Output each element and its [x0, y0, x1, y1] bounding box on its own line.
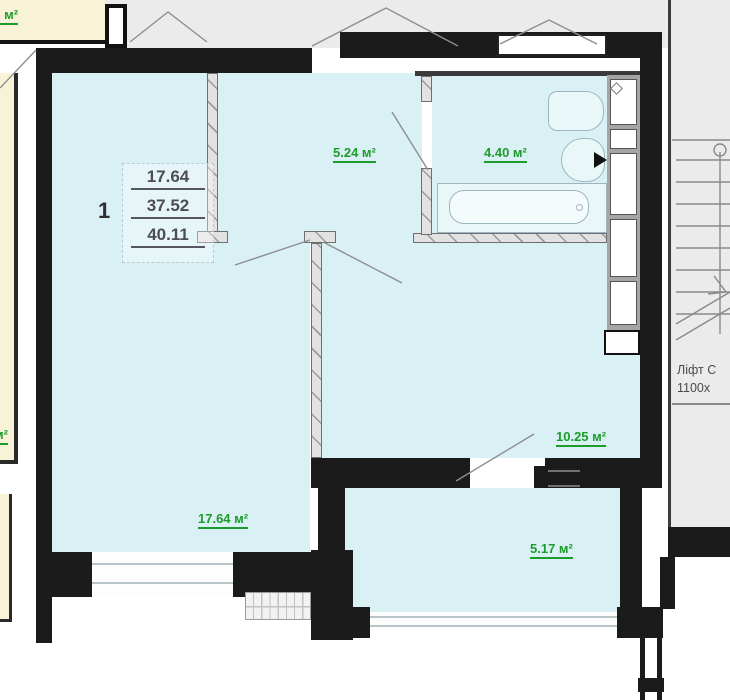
balcony-loggia: [345, 488, 630, 612]
storage-room: [217, 73, 422, 243]
hallway: [322, 243, 640, 458]
unit-summary-table: 17.64 37.52 40.11: [122, 163, 214, 263]
wall-hall-bottom-right: [545, 458, 662, 488]
stairwell-area: [668, 0, 730, 527]
wall-below-balcony-block: [638, 678, 664, 692]
floor-plan: 17.64 37.52 40.11 1 5.24 м² 4.40 м² 10.2…: [0, 0, 730, 700]
bathroom-area-label: 4.40 м²: [484, 146, 527, 163]
wall-right: [640, 32, 662, 470]
wall-niche: [497, 34, 607, 56]
wall-stair-bottom: [668, 527, 730, 557]
vent-shaft-box: [604, 330, 640, 355]
partition-living-hall: [311, 243, 322, 458]
overall-area-value: 40.11: [131, 225, 205, 248]
neighbor-balcony-left: [0, 494, 12, 622]
balcony-window: [370, 612, 617, 633]
wall-right-lower: [660, 557, 675, 609]
partition-cap-hall: [304, 231, 336, 243]
wall-pier: [105, 4, 127, 48]
vent-shaft-column: [607, 75, 640, 355]
wall-balcony-right: [620, 488, 642, 613]
partition-storage-bathroom-stub: [421, 76, 432, 102]
living-area-value: 17.64: [131, 167, 205, 190]
living-room-window: [92, 552, 233, 597]
balcony-area-label: 5.17 м²: [530, 542, 573, 559]
storage-area-label: 5.24 м²: [333, 146, 376, 163]
neighbor-area-label-left: м²: [0, 428, 8, 445]
elevator-label-line2: 1100х: [677, 380, 710, 398]
neighbor-unit-left: [0, 73, 18, 464]
elevator-label-line1: Ліфт С: [677, 362, 716, 380]
entrance-door-block: [534, 466, 548, 488]
living-room-area-label: 17.64 м²: [198, 512, 248, 529]
wall-top-left: [36, 48, 312, 73]
partition-storage-bathroom: [421, 168, 432, 235]
wall-living-bottom-right: [233, 552, 317, 597]
bathtub: [437, 183, 607, 233]
wall-balcony-foot-right: [617, 607, 663, 638]
wall-balcony-foot-left: [318, 607, 370, 638]
ac-basket-grille: [245, 592, 311, 620]
total-area-value: 37.52: [131, 196, 205, 219]
wall-hall-bottom-left: [311, 458, 470, 488]
toilet: [548, 91, 604, 131]
unit-number: 1: [98, 198, 110, 224]
sink-arrow-icon: [594, 152, 607, 168]
wall-living-bottom-corner: [36, 552, 92, 597]
neighbor-area-label-top: 43 м²: [0, 8, 18, 25]
hallway-area-label: 10.25 м²: [556, 430, 606, 447]
partition-bathroom-bottom: [413, 233, 607, 243]
